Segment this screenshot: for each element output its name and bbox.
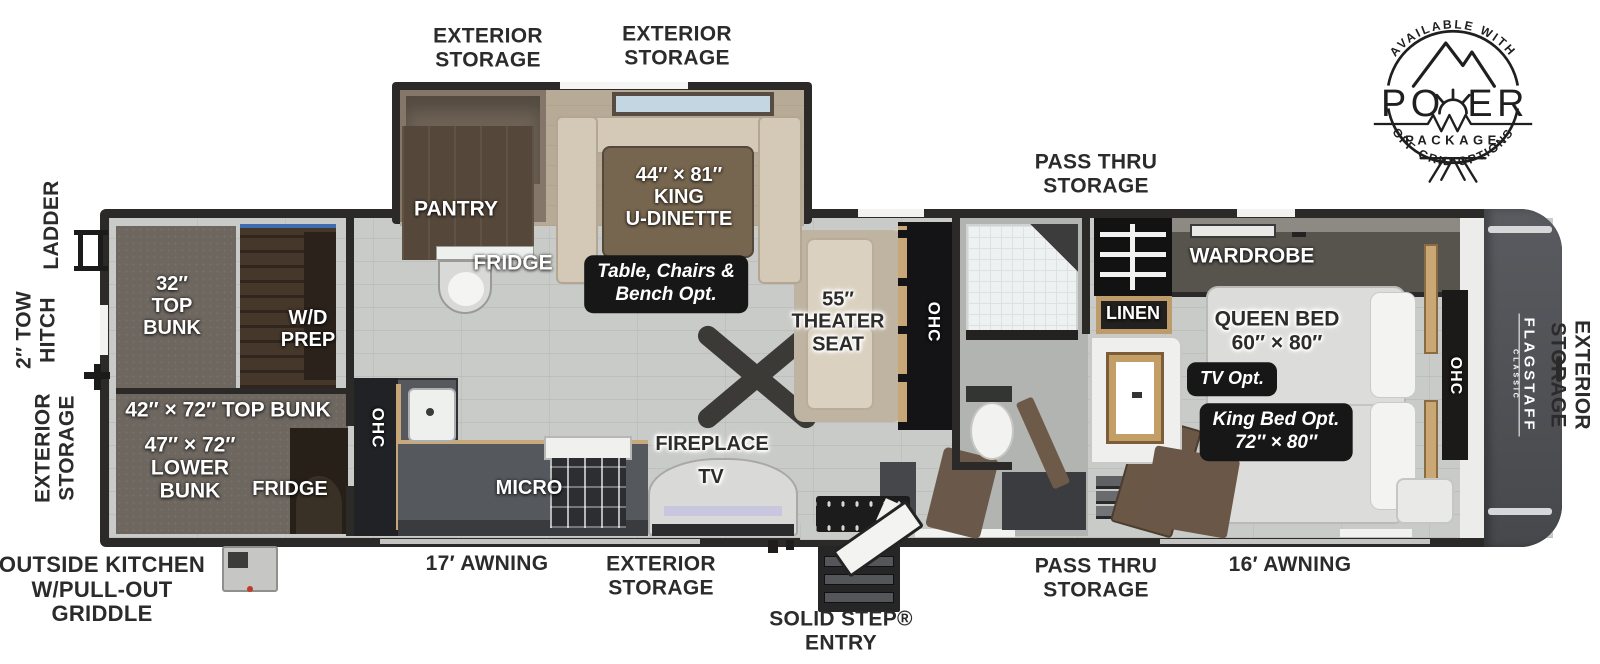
bed-pillow <box>1370 292 1416 398</box>
toilet-bowl <box>970 402 1014 460</box>
label-exterior-storage-top-left: EXTERIOR STORAGE <box>433 24 543 71</box>
shower-ledge <box>966 330 1078 340</box>
label-linen: LINEN <box>1106 304 1160 324</box>
headboard-trim <box>1424 244 1438 354</box>
ladder-icon <box>98 230 103 271</box>
brand-name: FLAGSTAFF <box>1518 313 1537 436</box>
label-ohc-theater: OHC <box>924 302 943 343</box>
brand-flagstaff: FLAGSTAFF CLASSIC <box>1510 313 1537 436</box>
theater-ohc-trim <box>898 226 907 422</box>
label-exterior-storage-right: EXTERIOR STORAGE <box>1546 320 1593 430</box>
cap-trim <box>1488 508 1552 515</box>
window-top-2 <box>1237 209 1295 217</box>
tv-base <box>652 524 794 536</box>
label-fireplace: FIREPLACE <box>655 433 768 455</box>
bedside-bench <box>1396 478 1454 524</box>
label-theater-seat: 55″ THEATER SEAT <box>792 288 885 355</box>
label-wd-prep: W/D PREP <box>281 307 335 351</box>
outside-kitchen-vent <box>228 552 248 568</box>
brand-sub: CLASSIC <box>1510 313 1518 436</box>
bunkroom-wall-upper <box>346 218 354 426</box>
bath-wall-left <box>952 218 960 470</box>
bunk-steps <box>304 232 336 380</box>
label-outside-kitchen: OUTSIDE KITCHEN W/PULL-OUT GRIDDLE <box>0 553 205 627</box>
label-king-u-dinette: 44″ × 81″ KING U-DINETTE <box>626 164 733 230</box>
label-top-bunk-42: 42″ × 72″ TOP BUNK <box>125 398 331 421</box>
label-tv: TV <box>698 466 724 488</box>
label-pass-thru-top: PASS THRU STORAGE <box>1035 150 1158 197</box>
cap-trim <box>1488 226 1552 233</box>
wire-shelf-post <box>1130 224 1135 290</box>
label-pass-thru-bottom: PASS THRU STORAGE <box>1035 554 1158 601</box>
label-exterior-storage-bottom: EXTERIOR STORAGE <box>606 552 716 599</box>
outside-kitchen-light <box>247 586 253 592</box>
window-rear <box>100 305 108 355</box>
entry-step-tread <box>824 592 894 603</box>
label-pantry: PANTRY <box>414 197 498 220</box>
dinette-bench-right <box>758 116 802 284</box>
label-exterior-storage-left: EXTERIOR STORAGE <box>31 393 78 503</box>
label-ladder: LADDER <box>40 180 64 269</box>
logo-po: PO <box>1381 83 1445 125</box>
label-micro: MICRO <box>496 477 563 499</box>
bath-wall-right <box>1082 218 1090 334</box>
wardrobe-vent <box>1190 224 1276 238</box>
logo-er: ER <box>1467 83 1529 125</box>
label-queen-bed: QUEEN BED 60″ × 80″ <box>1215 307 1340 354</box>
badge-dinette-option: Table, Chairs & Bench Opt. <box>584 255 748 313</box>
kitchen-faucet <box>426 408 434 416</box>
awning-16-rail <box>1160 539 1430 544</box>
ceiling-fan-hub <box>749 369 765 385</box>
tv-screen <box>664 506 782 516</box>
ladder-icon <box>78 230 83 271</box>
frame-tab <box>786 540 794 550</box>
stove-frame <box>544 436 632 460</box>
vanity-sink <box>1116 362 1154 434</box>
label-exterior-storage-top-mid: EXTERIOR STORAGE <box>622 22 732 69</box>
label-ohc-kitchen: OHC <box>368 408 387 449</box>
label-tow-hitch: 2″ TOW HITCH <box>12 291 59 369</box>
mountains-icon <box>1413 43 1494 86</box>
bath-counter <box>1002 472 1086 530</box>
label-lower-bunk-47: 47″ × 72″ LOWER BUNK <box>145 433 236 502</box>
bunk-led-strip <box>240 224 336 228</box>
label-fridge-kitchen: FRIDGE <box>473 251 552 274</box>
label-ohc-bedroom: OHC <box>1446 357 1464 396</box>
label-wardrobe: WARDROBE <box>1190 244 1315 267</box>
entry-step-tread <box>824 574 894 585</box>
power-package-logo: AVAILABLE WITH PO ER PACKAGE OFF-GRID OP… <box>1363 7 1543 187</box>
label-fridge-bunk: FRIDGE <box>252 478 328 500</box>
bunkroom-wall-lower <box>346 486 354 536</box>
badge-king-bed-option: King Bed Opt. 72″ × 80″ <box>1200 403 1353 461</box>
kitchen-ohc-cabinet <box>354 378 398 536</box>
window-bottom-2 <box>1340 529 1412 537</box>
window-top-1 <box>858 209 924 217</box>
label-solid-step: SOLID STEP® ENTRY <box>769 607 913 654</box>
wardrobe-handle <box>1292 232 1306 237</box>
dinette-skylight <box>612 92 774 116</box>
pantry-cabinet <box>402 126 534 260</box>
tow-hitch-icon <box>84 372 110 379</box>
label-awning-16: 16′ AWNING <box>1229 553 1352 577</box>
kitchen-fridge-door <box>448 272 484 306</box>
badge-tv-option: TV Opt. <box>1187 362 1277 396</box>
shower-corner <box>1030 224 1078 272</box>
label-awning-17: 17′ AWNING <box>426 552 549 576</box>
frame-tab <box>768 540 778 553</box>
bath-wall-stub <box>952 462 1012 470</box>
vanity-faucet <box>1132 392 1142 398</box>
slide-window <box>560 82 688 89</box>
rv-floorplan: AVAILABLE WITH PO ER PACKAGE OFF-GRID OP… <box>0 0 1600 664</box>
label-top-bunk-32: 32″ TOP BUNK <box>143 273 201 339</box>
awning-17-rail <box>380 539 700 544</box>
toilet-tank <box>966 386 1012 402</box>
